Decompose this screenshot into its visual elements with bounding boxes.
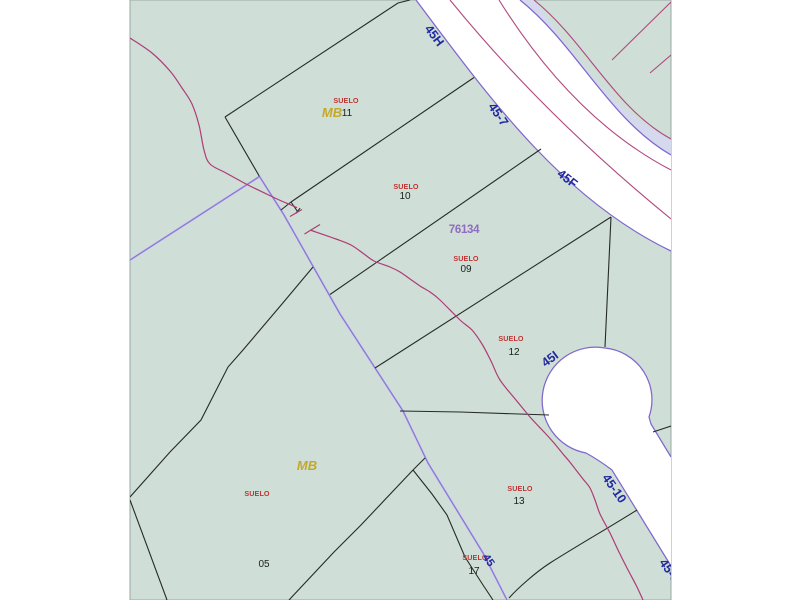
- svg-text:10: 10: [399, 191, 411, 202]
- svg-text:12: 12: [508, 347, 520, 358]
- svg-text:MB: MB: [322, 105, 342, 120]
- svg-text:SUELO: SUELO: [453, 254, 479, 263]
- svg-text:17: 17: [468, 566, 480, 577]
- svg-text:11: 11: [342, 108, 353, 119]
- svg-text:SUELO: SUELO: [244, 489, 270, 498]
- svg-text:09: 09: [460, 264, 472, 275]
- svg-text:SUELO: SUELO: [393, 182, 419, 191]
- svg-text:SUELO: SUELO: [498, 334, 524, 343]
- svg-text:SUELO: SUELO: [507, 484, 533, 493]
- svg-text:05: 05: [258, 559, 270, 570]
- svg-text:SUELO: SUELO: [333, 96, 359, 105]
- svg-text:13: 13: [513, 496, 525, 507]
- svg-text:MB: MB: [297, 458, 317, 473]
- svg-text:76134: 76134: [449, 224, 480, 236]
